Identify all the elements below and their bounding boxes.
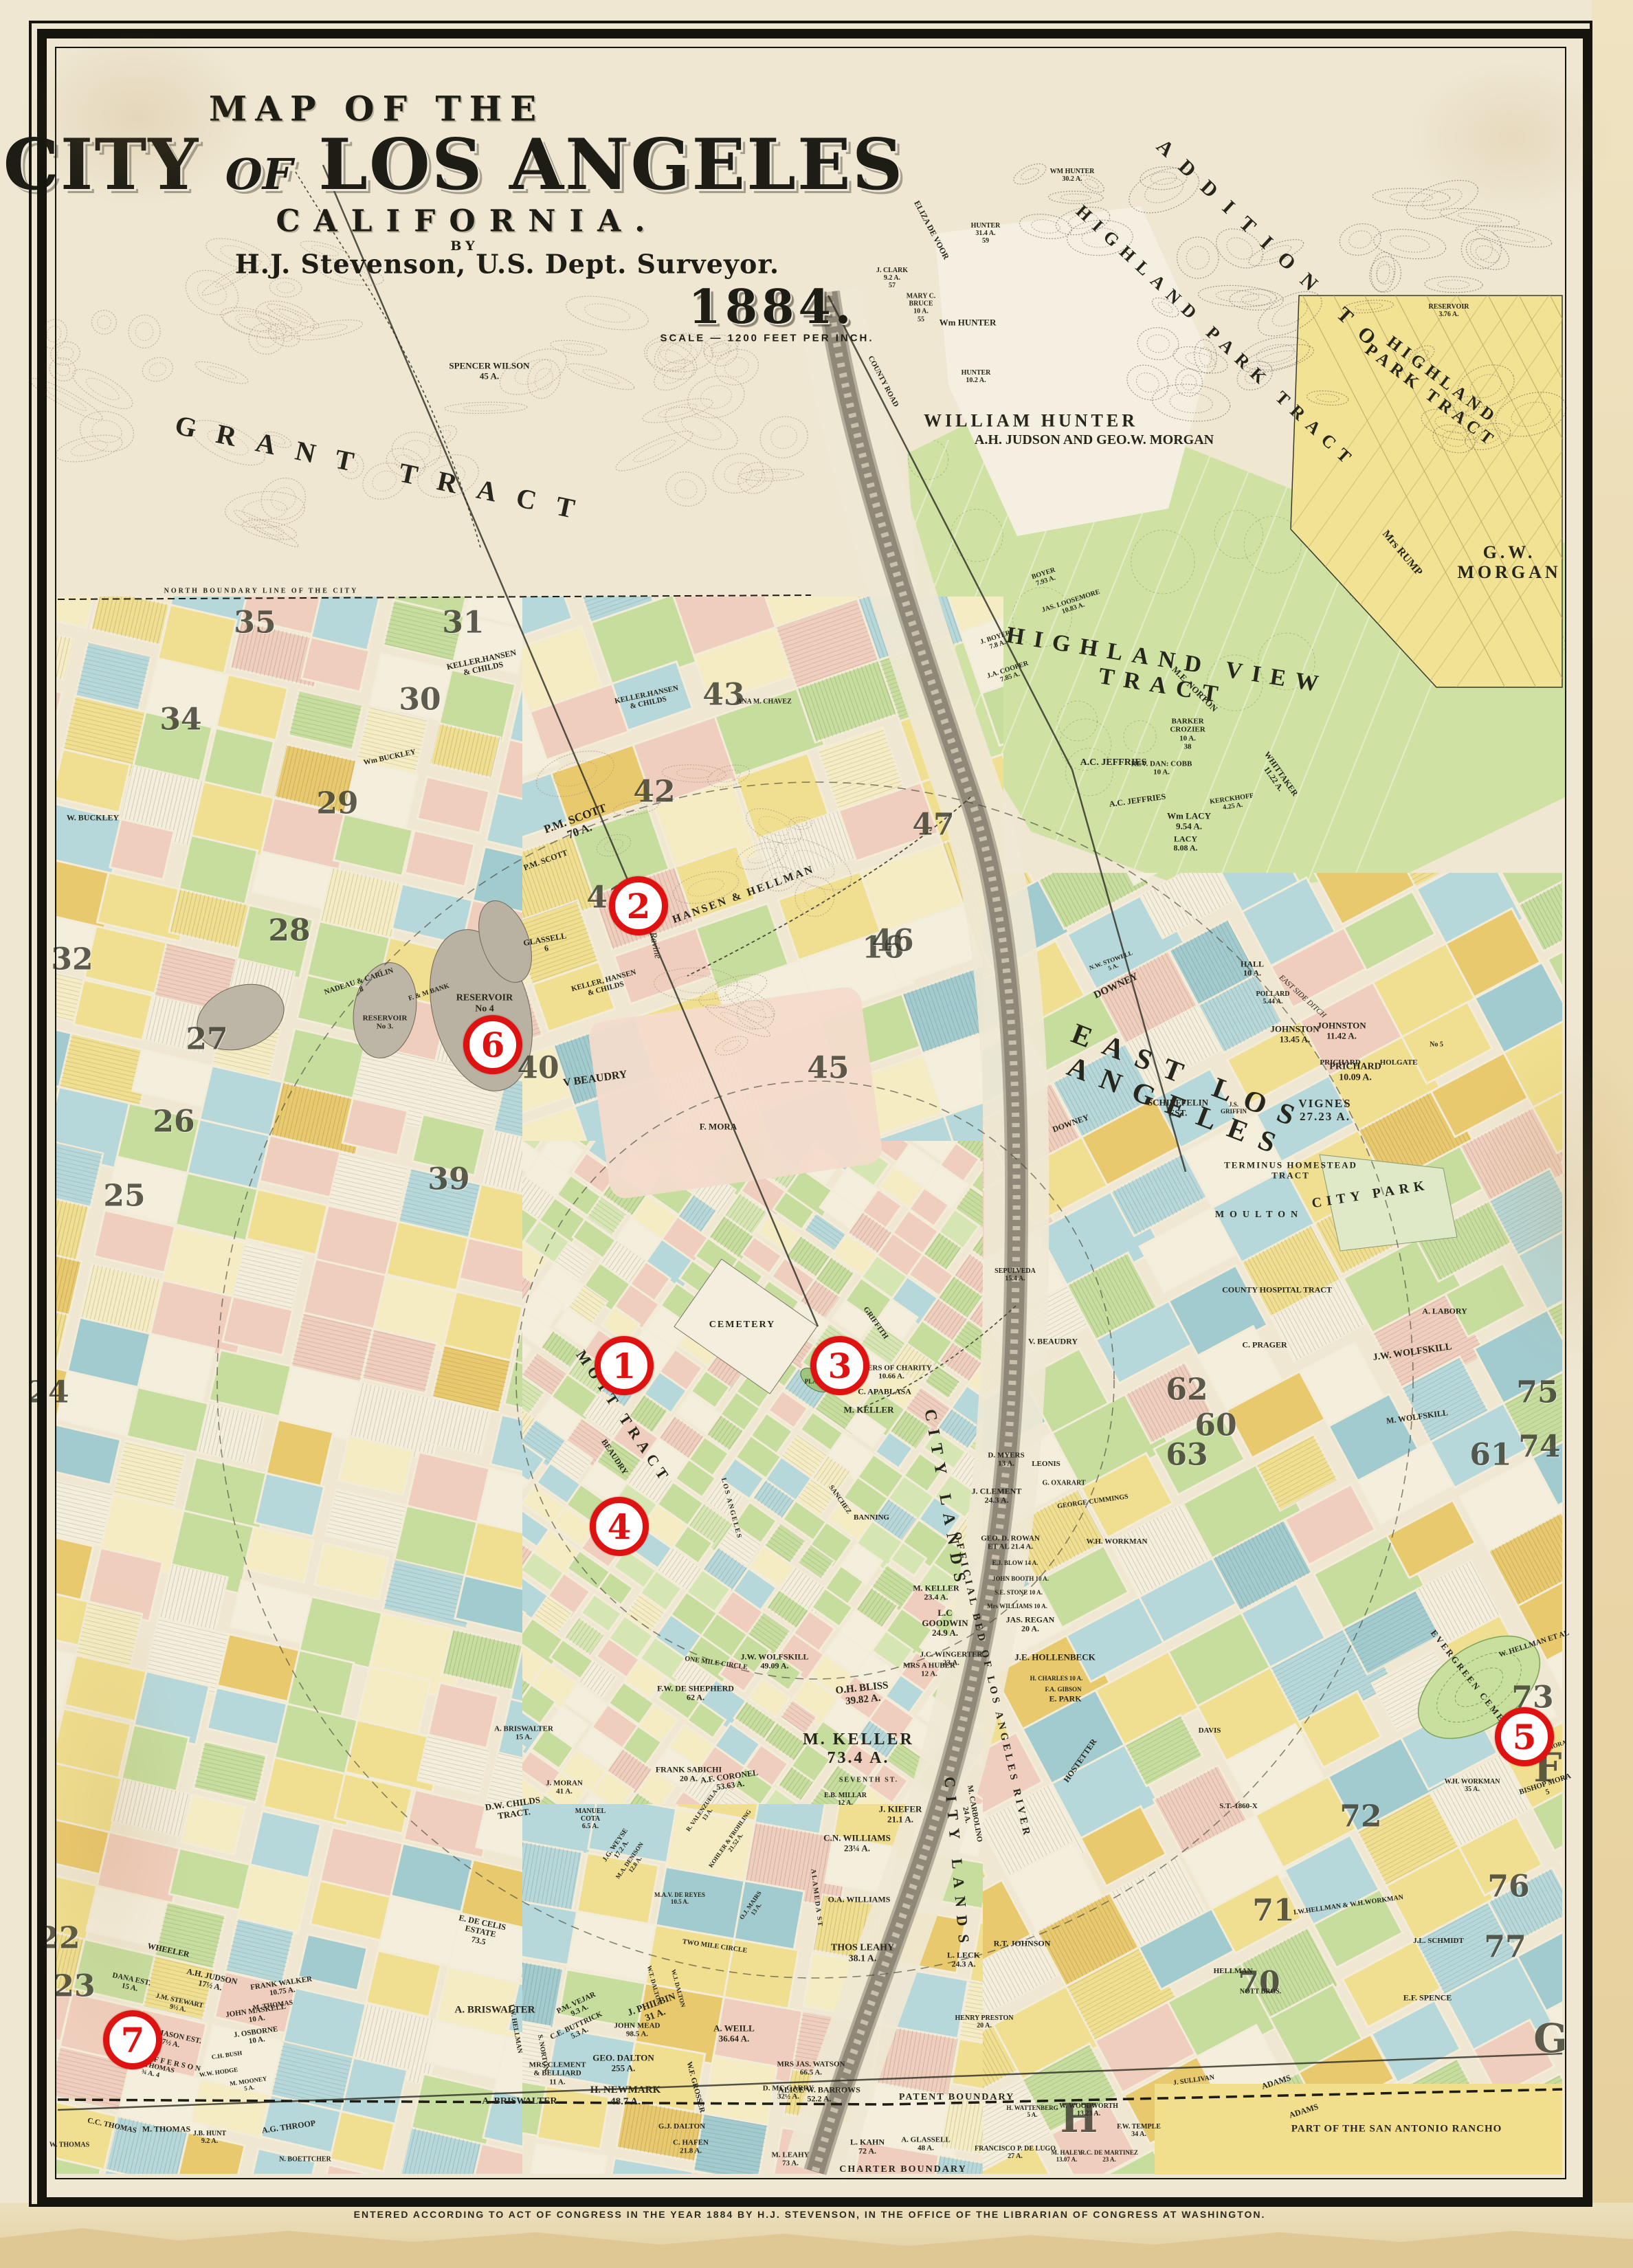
section-number-61: 61 bbox=[1469, 1438, 1511, 1473]
label-no5: No 5 bbox=[1430, 1041, 1443, 1048]
label-alice-barrows: ALICE W. BARROWS 52.2 A. bbox=[778, 2086, 860, 2104]
label-geo-dalton: GEO. DALTON 255 A. bbox=[592, 2053, 654, 2073]
annotation-marker-4[interactable]: 4 bbox=[590, 1497, 649, 1556]
label-f-mora: F. MORA bbox=[700, 1122, 737, 1133]
section-number-71: 71 bbox=[1252, 1893, 1294, 1928]
label-a-labory: A. LABORY bbox=[1422, 1307, 1467, 1315]
label-sepulveda: SEPULVEDA 15.4 A. bbox=[995, 1267, 1036, 1282]
label-gw-morgan: G.W. MORGAN bbox=[1447, 542, 1571, 582]
label-j-clark: J. CLARK 9.2 A. 57 bbox=[876, 267, 908, 290]
label-w-thomas: W. THOMAS bbox=[49, 2141, 89, 2148]
label-w-buckley: W. BUCKLEY bbox=[67, 813, 119, 822]
label-m-thomas: M. THOMAS bbox=[142, 2124, 190, 2133]
label-johnston1: JOHNSTON 13.45 A. bbox=[1270, 1024, 1319, 1044]
label-wm-hunter-sm: Wm HUNTER bbox=[940, 318, 997, 329]
title-surveyor: H.J. Stevenson, U.S. Dept. Surveyor. bbox=[235, 249, 779, 280]
label-holgate: HOLGATE bbox=[1380, 1058, 1418, 1067]
label-js-griffin: J.S. GRIFFIN bbox=[1221, 1101, 1247, 1115]
label-a-glassell-s: A. GLASSELL 48 A. bbox=[901, 2136, 951, 2153]
section-number-76: 76 bbox=[1487, 1869, 1529, 1904]
label-l-kahn: L. KAHN 72 A. bbox=[850, 2138, 885, 2157]
label-reservoir3: RESERVOIR No 3. bbox=[363, 1014, 408, 1032]
section-number-25: 25 bbox=[103, 1179, 145, 1214]
label-hall: HALL 10 A. bbox=[1241, 960, 1264, 979]
section-number-23: 23 bbox=[53, 1969, 95, 2004]
section-number-40: 40 bbox=[517, 1051, 559, 1086]
section-number-26: 26 bbox=[153, 1104, 195, 1139]
label-c-prager: C. PRAGER bbox=[1242, 1340, 1287, 1349]
title-los-angeles: LOS ANGELES bbox=[318, 124, 904, 206]
label-a-briswalter: A. BRISWALTER bbox=[455, 2005, 535, 2016]
label-hellman: HELLMAN bbox=[1214, 1967, 1253, 1975]
label-vignes: VIGNES 27.23 A. bbox=[1298, 1097, 1351, 1123]
annotation-marker-6[interactable]: 6 bbox=[463, 1015, 522, 1074]
label-j-moran: J. MORAN 41 A. bbox=[546, 1779, 583, 1797]
label-clement-belliard: MRS CLEMENT & BELLIARD 11 A. bbox=[529, 2061, 586, 2087]
section-number-43: 43 bbox=[702, 678, 744, 713]
label-jas-regan: JAS. REGAN 20 A. bbox=[1006, 1616, 1055, 1634]
label-judson-morgan: A.H. JUDSON AND GEO.W. MORGAN bbox=[975, 432, 1214, 447]
label-leonis: LEONIS bbox=[1032, 1460, 1060, 1468]
label-part-san-antonio: PART OF THE SAN ANTONIO RANCHO bbox=[1291, 2124, 1502, 2135]
section-number-62: 62 bbox=[1166, 1372, 1208, 1408]
label-wm-hunter-top: WM HUNTER 30.2 A. bbox=[1050, 168, 1095, 183]
label-terminus: TERMINUS HOMESTEAD TRACT bbox=[1224, 1160, 1357, 1180]
section-number-60: 60 bbox=[1195, 1408, 1236, 1443]
label-j-kiefer: J. KIEFER 21.1 A. bbox=[879, 1804, 922, 1824]
section-number-45: 45 bbox=[807, 1051, 849, 1086]
label-m-haley: M. HALEY 13.07 A. bbox=[1052, 2149, 1082, 2163]
title-city-of-los-angeles: CITY OF LOS ANGELES bbox=[3, 124, 904, 206]
label-mav-de-reyes: M.A.V. DE REYES 10.5 A. bbox=[654, 1891, 705, 1905]
label-j-clement: J. CLEMENT 24.3 A. bbox=[972, 1487, 1022, 1506]
section-number-46: 46 bbox=[871, 924, 913, 959]
label-h-charles: H. CHARLES 10 A. bbox=[1030, 1675, 1083, 1682]
label-v-beaudry-e: V. BEAUDRY bbox=[1028, 1337, 1078, 1346]
label-henry-preston: HENRY PRESTON 20 A. bbox=[955, 2014, 1014, 2030]
title-city: CITY bbox=[3, 124, 200, 206]
label-jb-hunt: J.B. HUNT 9.2 A. bbox=[193, 2130, 226, 2145]
label-m-keller-big: M. KELLER 73.4 A. bbox=[803, 1731, 914, 1768]
annotation-marker-1[interactable]: 1 bbox=[595, 1336, 654, 1395]
paper-margin-right bbox=[1592, 0, 1633, 2268]
label-davis: DAVIS bbox=[1199, 1726, 1221, 1735]
label-banning: BANNING bbox=[854, 1513, 889, 1522]
label-d-myers: D. MYERS 13 A. bbox=[988, 1452, 1024, 1469]
label-fw-temple: F.W. TEMPLE 34 A. bbox=[1117, 2123, 1161, 2138]
label-hunter-sm2: HUNTER 10.2 A. bbox=[962, 369, 991, 384]
label-cn-williams: C.N. WILLIAMS 23¼ A. bbox=[823, 1833, 891, 1853]
label-a-weill: A. WEILL 36.64 A. bbox=[713, 2023, 755, 2043]
section-number-28: 28 bbox=[268, 913, 310, 948]
section-number-24: 24 bbox=[27, 1375, 69, 1410]
label-se-stone: S.E. STONE 10 A. bbox=[995, 1589, 1043, 1596]
section-number-22: 22 bbox=[38, 1921, 80, 1956]
label-g-oxarart: G. OXARART bbox=[1043, 1479, 1086, 1487]
label-north-boundary: NORTH BOUNDARY LINE OF THE CITY bbox=[164, 587, 359, 594]
label-patent-boundary: PATENT BOUNDARY bbox=[899, 2092, 1014, 2103]
label-john-mead: JOHN MEAD 98.5 A. bbox=[614, 2022, 660, 2039]
map-canvas: MAP OF THE CITY OF LOS ANGELES CALIFORNI… bbox=[0, 0, 1633, 2268]
label-fa-gibson: F.A. GIBSON bbox=[1045, 1686, 1082, 1693]
label-m-keller-plaza: M. KELLER bbox=[844, 1405, 894, 1416]
label-mrs-williams: Mrs WILLIAMS 10 A. bbox=[987, 1603, 1047, 1610]
section-number-35: 35 bbox=[234, 605, 276, 641]
label-rt-johnson: R.T. JOHNSON bbox=[994, 1939, 1051, 1948]
label-seventh-st: SEVENTH ST. bbox=[839, 1776, 898, 1783]
label-johnston2: JOHNSTON 11.42 A. bbox=[1317, 1021, 1366, 1041]
label-schieffelin: SCHIEFFELIN EST. bbox=[1148, 1098, 1208, 1118]
label-n-boettcher: N. BOETTCHER bbox=[279, 2155, 331, 2163]
section-number-72: 72 bbox=[1340, 1799, 1381, 1834]
label-wh-workman-e: W.H. WORKMAN bbox=[1087, 1537, 1148, 1546]
label-prichard: PRICHARD bbox=[1320, 1058, 1360, 1067]
label-pollard: POLLARD 5.44 A. bbox=[1256, 990, 1290, 1005]
label-john-booth: JOHN BOOTH 10 A. bbox=[992, 1575, 1049, 1582]
annotation-marker-7[interactable]: 7 bbox=[103, 2010, 162, 2069]
label-francisco-lugo: FRANCISCO P. DE LUGO 27 A. bbox=[975, 2145, 1056, 2160]
label-ef-spence: E.F. SPENCE bbox=[1403, 1993, 1452, 2002]
label-ana-chavez: ANA M. CHAVEZ bbox=[737, 698, 792, 705]
section-number-77: 77 bbox=[1484, 1930, 1526, 1965]
label-charter-boundary: CHARTER BOUNDARY bbox=[839, 2164, 966, 2175]
label-mary-bruce: MARY C. BRUCE 10 A. 55 bbox=[907, 293, 936, 324]
section-number-G: G bbox=[1533, 2015, 1568, 2062]
label-a-briswalter2: A. BRISWALTER 15 A. bbox=[494, 1725, 553, 1742]
label-oa-williams: O.A. WILLIAMS bbox=[828, 1895, 891, 1904]
section-number-34: 34 bbox=[159, 702, 201, 737]
label-eb-millar: E.B. MILLAR 12 A. bbox=[824, 1792, 867, 1807]
label-nott-bros: NOTT BROS. bbox=[1240, 1988, 1281, 1995]
section-number-30: 30 bbox=[399, 682, 441, 718]
label-a-briswalter3: A. BRISWALTER bbox=[482, 2096, 557, 2107]
label-m-leahy: M. LEAHY 73 A. bbox=[772, 2151, 810, 2168]
label-fw-de-shepherd: F.W. DE SHEPHERD 62 A. bbox=[657, 1685, 734, 1703]
annotation-marker-2[interactable]: 2 bbox=[609, 876, 668, 935]
label-c-hafen: C. HAFEN 21.8 A. bbox=[673, 2139, 709, 2156]
section-number-39: 39 bbox=[427, 1162, 469, 1197]
label-manuel-cota: MANUEL COTA 6.5 A. bbox=[575, 1808, 606, 1831]
label-wm-lacy: Wm LACY 9.54 A. bbox=[1167, 811, 1211, 831]
label-hunter-59: HUNTER 31.4 A. 59 bbox=[971, 222, 1001, 245]
label-e-park: E. PARK bbox=[1049, 1694, 1081, 1703]
label-ej-blow: E.J. BLOW 14 A. bbox=[992, 1559, 1038, 1566]
label-hollenbeck: J.E. HOLLENBECK bbox=[1014, 1653, 1095, 1663]
title-year: 1884. bbox=[689, 280, 856, 335]
label-w-woodworth: W. WOODWORTH 13.23 A. bbox=[1059, 2102, 1118, 2117]
title-map-of-the: MAP OF THE bbox=[209, 89, 544, 129]
label-lacy: LACY 8.08 A. bbox=[1173, 835, 1197, 854]
label-jw-wolfskill-s: J.W. WOLFSKILL 49.09 A. bbox=[740, 1653, 808, 1671]
label-thos-leahy: THOS LEAHY 38.1 A. bbox=[831, 1942, 894, 1964]
label-spencer-wilson: SPENCER WILSON 45 A. bbox=[449, 361, 529, 381]
title-california: CALIFORNIA. bbox=[276, 204, 658, 239]
label-reservoir-inset: RESERVOIR 3.76 A. bbox=[1429, 303, 1469, 318]
section-number-32: 32 bbox=[51, 942, 93, 977]
label-geo-rowan: GEO. D. ROWAN ET AL 21.4 A. bbox=[981, 1535, 1040, 1552]
title-of: OF bbox=[225, 149, 293, 199]
label-m-keller-23: M. KELLER 23.4 A. bbox=[913, 1584, 959, 1603]
label-lc-goodwin: L.C GOODWIN 24.9 A. bbox=[922, 1608, 968, 1638]
title-scale-note: SCALE — 1200 FEET PER INCH. bbox=[660, 333, 874, 344]
label-reservoir4: RESERVOIR No 4 bbox=[456, 992, 513, 1014]
label-rev-dan-cobb: REV. DAN: COBB 10 A. bbox=[1131, 760, 1192, 777]
copyright-line: ENTERED ACCORDING TO ACT OF CONGRESS IN … bbox=[354, 2209, 1266, 2220]
annotation-marker-3[interactable]: 3 bbox=[810, 1336, 869, 1395]
label-l-leck: L. LECK 24.3 A. bbox=[947, 1951, 980, 1970]
label-barker-crozier: BARKER CROZIER 10 A. 38 bbox=[1170, 717, 1205, 751]
section-number-75: 75 bbox=[1516, 1375, 1558, 1410]
section-number-29: 29 bbox=[316, 786, 358, 821]
label-cemetery: CEMETERY bbox=[709, 1320, 775, 1331]
label-rc-martinez: R.C. DE MARTINEZ 23 A. bbox=[1080, 2149, 1138, 2163]
label-moulton: MOULTON bbox=[1215, 1210, 1303, 1221]
label-gj-dalton: G.J. DALTON bbox=[658, 2122, 705, 2131]
label-mrs-jas-watson: MRS JAS. WATSON 66.5 A. bbox=[777, 2060, 845, 2078]
section-number-27: 27 bbox=[186, 1022, 227, 1057]
section-number-47: 47 bbox=[912, 808, 954, 843]
label-h-newmark: H. NEWMARK 48.7 A. bbox=[590, 2084, 661, 2108]
label-c-apablasa: C. APABLASA bbox=[858, 1387, 911, 1396]
section-number-42: 42 bbox=[633, 775, 675, 810]
section-number-31: 31 bbox=[442, 605, 484, 641]
label-h-wattenberg: H. WATTENBERG 5 A. bbox=[1006, 2104, 1058, 2118]
annotation-marker-5[interactable]: 5 bbox=[1495, 1707, 1554, 1766]
label-wh-workman-35: W.H. WORKMAN 35 A. bbox=[1445, 1778, 1500, 1793]
label-jc-wingerter: J.C. WINGERTER 23 A. bbox=[920, 1651, 983, 1668]
label-st-1860: S.T.-1860-X bbox=[1219, 1802, 1257, 1810]
label-jl-schmidt: J.L. SCHMIDT bbox=[1413, 1937, 1464, 1945]
label-william-hunter: WILLIAM HUNTER bbox=[924, 410, 1138, 430]
label-county-hospital: COUNTY HOSPITAL TRACT bbox=[1222, 1285, 1332, 1294]
section-number-74: 74 bbox=[1518, 1430, 1560, 1465]
